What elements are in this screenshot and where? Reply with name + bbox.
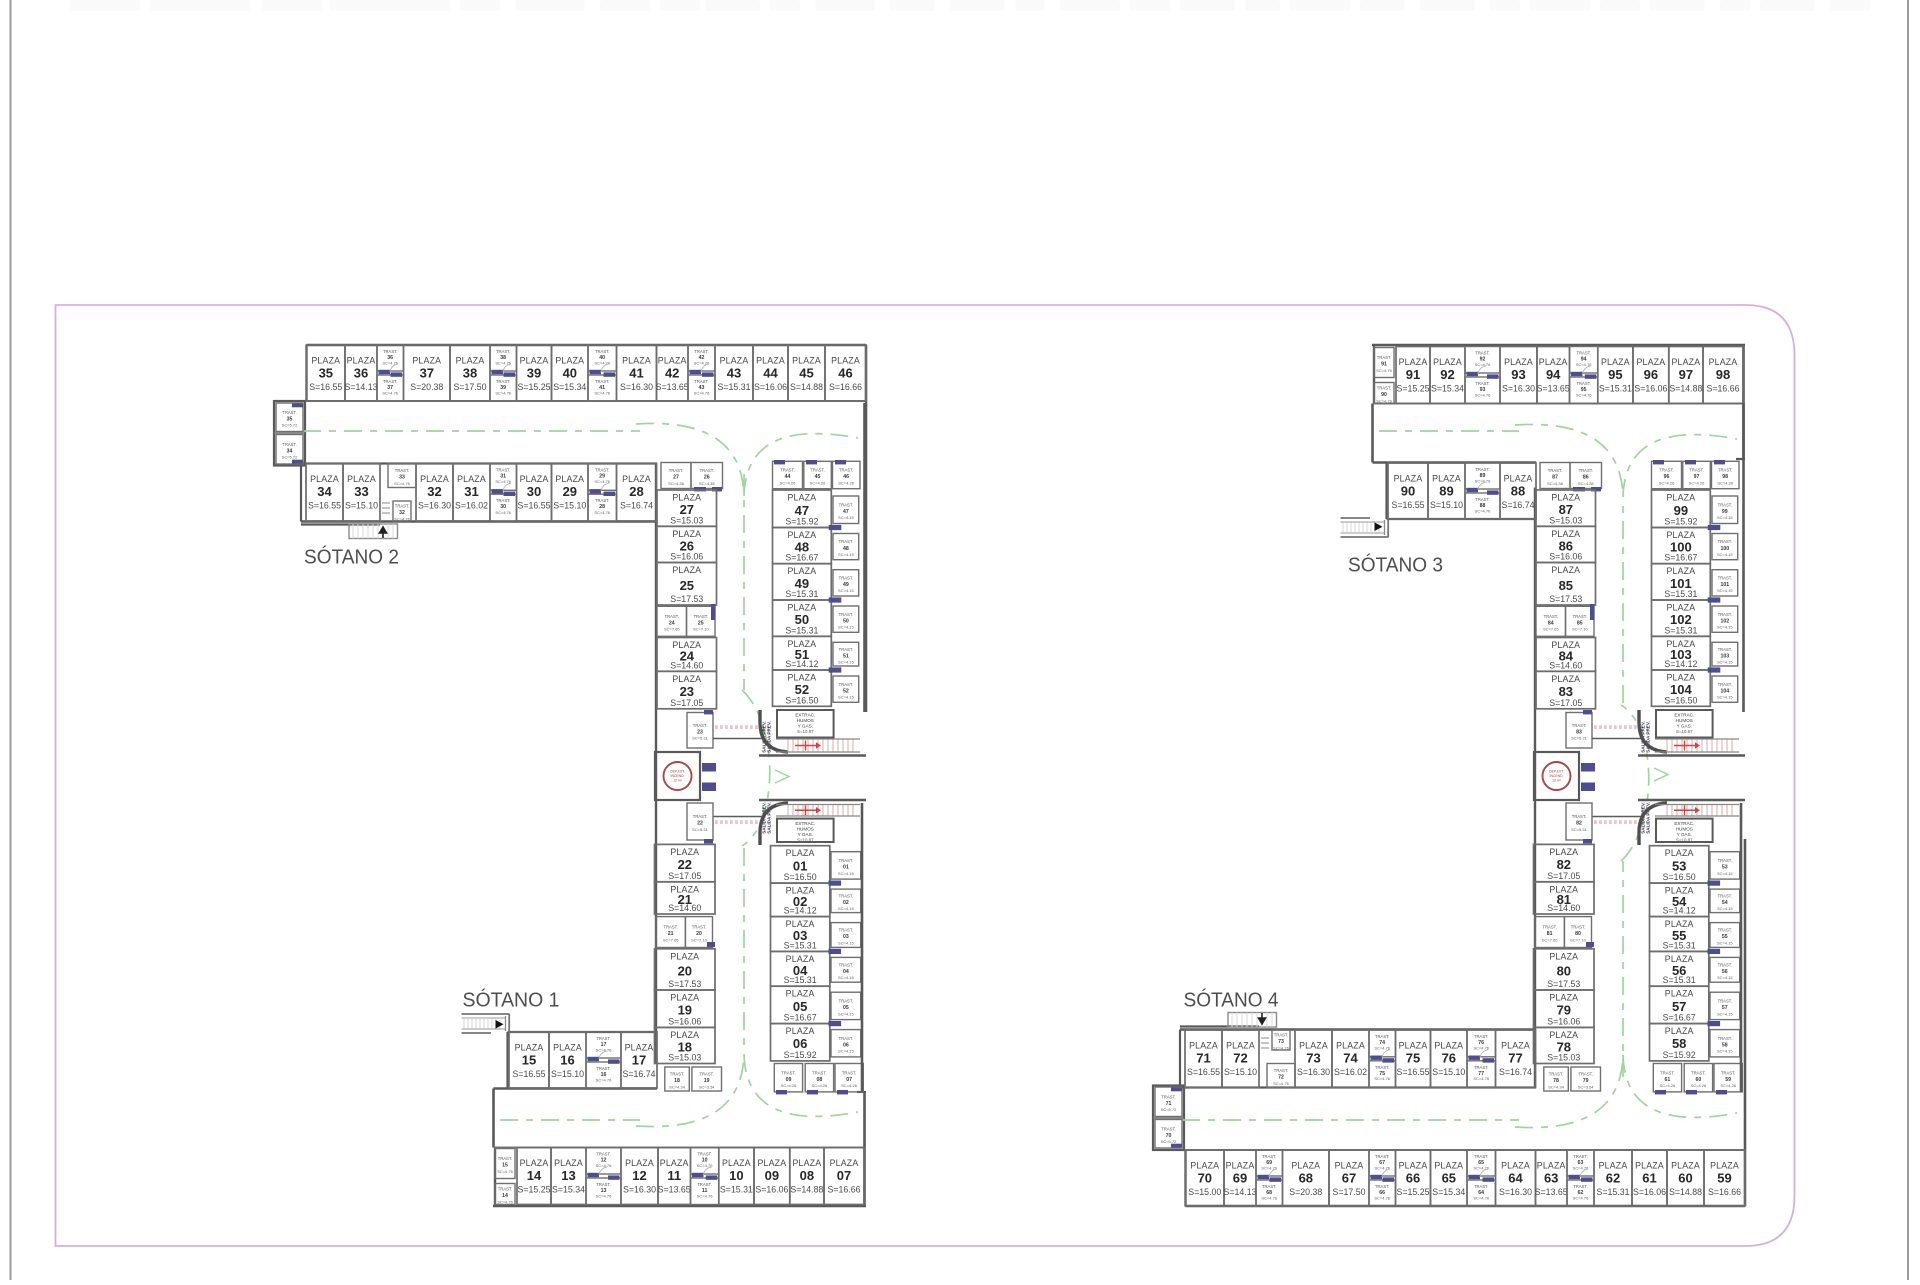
svg-text:TRAST.: TRAST. bbox=[1721, 1070, 1735, 1075]
svg-text:PLAZA: PLAZA bbox=[660, 1158, 689, 1168]
svg-text:SÓTANO 1: SÓTANO 1 bbox=[463, 989, 560, 1012]
svg-text:60: 60 bbox=[1678, 1171, 1692, 1186]
svg-text:S=16.66: S=16.66 bbox=[829, 382, 862, 392]
svg-text:PLAZA: PLAZA bbox=[786, 848, 815, 858]
svg-text:05: 05 bbox=[843, 1005, 849, 1011]
svg-text:PLAZA: PLAZA bbox=[1666, 493, 1695, 503]
svg-text:TRAST.: TRAST. bbox=[282, 442, 296, 447]
svg-text:S=16.55: S=16.55 bbox=[1391, 500, 1424, 510]
svg-text:SC=4.76: SC=4.76 bbox=[495, 510, 511, 515]
svg-text:PLAZA: PLAZA bbox=[670, 951, 699, 961]
svg-text:S=15.31: S=15.31 bbox=[1663, 975, 1696, 985]
svg-text:PLAZA: PLAZA bbox=[1399, 357, 1428, 367]
svg-text:PLAZA: PLAZA bbox=[1551, 674, 1580, 684]
svg-text:PLAZA: PLAZA bbox=[1709, 357, 1738, 367]
svg-text:S=14.12: S=14.12 bbox=[1663, 906, 1696, 916]
svg-text:22: 22 bbox=[697, 821, 703, 827]
svg-text:78: 78 bbox=[1553, 1078, 1559, 1084]
svg-text:PLAZA: PLAZA bbox=[1504, 357, 1533, 367]
svg-text:76: 76 bbox=[1442, 1051, 1456, 1066]
svg-text:88: 88 bbox=[1511, 484, 1525, 499]
svg-text:96: 96 bbox=[1664, 474, 1670, 480]
svg-text:83: 83 bbox=[1576, 730, 1582, 736]
svg-text:PLAZA: PLAZA bbox=[456, 356, 485, 366]
svg-text:PLAZA: PLAZA bbox=[1666, 566, 1695, 576]
svg-text:SC=4.76: SC=4.76 bbox=[497, 1199, 513, 1204]
svg-text:SC=4.76: SC=4.76 bbox=[1576, 393, 1592, 398]
svg-text:27: 27 bbox=[673, 475, 679, 481]
svg-text:98: 98 bbox=[1722, 474, 1728, 480]
svg-text:TRAST.: TRAST. bbox=[1718, 502, 1732, 507]
svg-text:S=16.66: S=16.66 bbox=[1708, 1187, 1741, 1197]
svg-text:PLAZA: PLAZA bbox=[672, 674, 701, 684]
svg-text:32: 32 bbox=[427, 484, 441, 499]
svg-text:PLAZA: PLAZA bbox=[457, 474, 486, 484]
svg-text:39: 39 bbox=[527, 366, 541, 381]
svg-text:20: 20 bbox=[678, 963, 692, 978]
svg-text:19: 19 bbox=[704, 1078, 710, 1084]
svg-text:SC=4.26: SC=4.26 bbox=[838, 480, 854, 485]
svg-text:PLAZA: PLAZA bbox=[1434, 1041, 1463, 1051]
svg-text:PLAZA: PLAZA bbox=[622, 474, 651, 484]
svg-text:25: 25 bbox=[680, 578, 694, 593]
svg-text:35: 35 bbox=[287, 416, 293, 422]
svg-text:SC=4.76: SC=4.76 bbox=[1573, 1196, 1589, 1201]
svg-text:PLAZA: PLAZA bbox=[792, 1158, 821, 1168]
svg-text:S=10.87: S=10.87 bbox=[797, 838, 814, 843]
svg-text:01: 01 bbox=[843, 865, 849, 871]
svg-text:TRAST.: TRAST. bbox=[1474, 1154, 1488, 1159]
svg-text:09: 09 bbox=[786, 1077, 792, 1083]
svg-text:S=15.92: S=15.92 bbox=[785, 517, 818, 527]
svg-text:TRAST.: TRAST. bbox=[596, 1152, 610, 1157]
svg-text:TRAST.: TRAST. bbox=[1578, 1072, 1592, 1077]
svg-text:25: 25 bbox=[698, 621, 704, 627]
svg-text:PLAZA: PLAZA bbox=[622, 356, 651, 366]
svg-text:44: 44 bbox=[763, 366, 778, 381]
svg-text:S=16.55: S=16.55 bbox=[517, 501, 550, 511]
svg-text:90: 90 bbox=[1381, 392, 1387, 398]
svg-text:Y GAS.: Y GAS. bbox=[798, 724, 813, 729]
svg-text:TRAST.: TRAST. bbox=[1474, 1065, 1488, 1070]
svg-text:S=17.53: S=17.53 bbox=[1549, 594, 1582, 604]
svg-text:PLAZA: PLAZA bbox=[1432, 474, 1461, 484]
svg-text:SC=4.26: SC=4.26 bbox=[812, 1083, 828, 1088]
svg-text:28: 28 bbox=[629, 484, 643, 499]
svg-text:PLAZA: PLAZA bbox=[1399, 1161, 1428, 1171]
svg-text:S=16.74: S=16.74 bbox=[1501, 500, 1534, 510]
svg-text:PLAZA: PLAZA bbox=[1299, 1041, 1328, 1051]
svg-text:PLAZA: PLAZA bbox=[310, 474, 339, 484]
svg-text:TRAST.: TRAST. bbox=[1475, 497, 1489, 502]
svg-text:TRAST.: TRAST. bbox=[839, 999, 853, 1004]
svg-text:33: 33 bbox=[354, 484, 368, 499]
svg-text:TRAST.: TRAST. bbox=[1718, 999, 1732, 1004]
svg-text:SÓTANO 3: SÓTANO 3 bbox=[1348, 554, 1443, 577]
svg-text:PLAZA: PLAZA bbox=[1665, 1026, 1694, 1036]
svg-text:SC=4.26: SC=4.26 bbox=[1720, 1083, 1736, 1088]
svg-text:PLAZA: PLAZA bbox=[830, 1158, 859, 1168]
svg-text:SC=4.76: SC=4.76 bbox=[1473, 1196, 1489, 1201]
svg-text:PLAZA: PLAZA bbox=[555, 356, 584, 366]
svg-text:PLAZA: PLAZA bbox=[658, 356, 687, 366]
svg-text:SC=4.15: SC=4.15 bbox=[838, 940, 854, 945]
svg-text:S=10.87: S=10.87 bbox=[1676, 729, 1693, 734]
svg-text:S=16.06: S=16.06 bbox=[754, 382, 787, 392]
svg-text:S=15.31: S=15.31 bbox=[717, 382, 750, 392]
svg-text:PLAZA: PLAZA bbox=[757, 1158, 786, 1168]
svg-text:S=15.25: S=15.25 bbox=[517, 382, 550, 392]
svg-text:S=16.30: S=16.30 bbox=[1502, 384, 1535, 394]
svg-text:TRAST.: TRAST. bbox=[1548, 468, 1562, 473]
svg-text:71: 71 bbox=[1166, 1101, 1172, 1107]
svg-text:S=16.50: S=16.50 bbox=[785, 695, 818, 705]
svg-text:TRAST.: TRAST. bbox=[669, 468, 683, 473]
svg-text:TRAST.: TRAST. bbox=[694, 379, 708, 384]
svg-text:TRAST.: TRAST. bbox=[665, 614, 679, 619]
svg-text:S=14.88: S=14.88 bbox=[1669, 384, 1702, 394]
svg-text:SC=4.15: SC=4.15 bbox=[1717, 695, 1733, 700]
svg-text:TRAST.: TRAST. bbox=[1718, 612, 1732, 617]
svg-text:TRAST.: TRAST. bbox=[697, 1152, 711, 1157]
svg-text:HUMOS: HUMOS bbox=[1676, 718, 1693, 723]
svg-text:TRAST.: TRAST. bbox=[781, 1070, 795, 1075]
svg-text:S=20.38: S=20.38 bbox=[1289, 1187, 1322, 1197]
svg-text:TRAST.: TRAST. bbox=[1274, 1033, 1288, 1038]
svg-text:SC=4.15: SC=4.15 bbox=[838, 660, 854, 665]
svg-text:30: 30 bbox=[527, 484, 541, 499]
svg-text:PLAZA: PLAZA bbox=[625, 1043, 654, 1053]
svg-text:03: 03 bbox=[843, 934, 849, 940]
svg-text:TRAST.: TRAST. bbox=[839, 682, 853, 687]
svg-text:TRAST.: TRAST. bbox=[1573, 1184, 1587, 1189]
svg-text:TRAST.: TRAST. bbox=[1718, 1036, 1732, 1041]
svg-text:S=13.65: S=13.65 bbox=[658, 1185, 691, 1195]
svg-text:SC=5.72: SC=5.72 bbox=[282, 455, 298, 460]
svg-text:SC=4.76: SC=4.76 bbox=[394, 516, 410, 521]
svg-text:SC=4.15: SC=4.15 bbox=[838, 906, 854, 911]
svg-text:S=16.55: S=16.55 bbox=[308, 501, 341, 511]
svg-text:100: 100 bbox=[1720, 546, 1729, 552]
svg-text:S=16.55: S=16.55 bbox=[512, 1069, 545, 1079]
svg-text:S=16.06: S=16.06 bbox=[1634, 384, 1667, 394]
svg-text:PLAZA: PLAZA bbox=[554, 1158, 583, 1168]
svg-text:SC=5.31: SC=5.31 bbox=[1571, 827, 1587, 832]
svg-text:S=16.06: S=16.06 bbox=[670, 552, 703, 562]
svg-text:SC=4.15: SC=4.15 bbox=[1717, 940, 1733, 945]
svg-text:S=14.12: S=14.12 bbox=[785, 659, 818, 669]
svg-text:SC=4.76: SC=4.76 bbox=[1376, 368, 1392, 373]
svg-text:S=15.03: S=15.03 bbox=[1549, 515, 1582, 525]
svg-text:TRAST.: TRAST. bbox=[1576, 381, 1590, 386]
svg-text:23: 23 bbox=[680, 684, 694, 699]
svg-text:PLAZA: PLAZA bbox=[1635, 1161, 1664, 1171]
svg-text:S=17.50: S=17.50 bbox=[453, 382, 486, 392]
svg-text:08: 08 bbox=[817, 1077, 823, 1083]
svg-text:91: 91 bbox=[1406, 367, 1420, 382]
svg-text:PLAZA: PLAZA bbox=[1539, 357, 1568, 367]
svg-text:S=15.03: S=15.03 bbox=[1547, 1053, 1580, 1063]
svg-text:SC=4.15: SC=4.15 bbox=[1717, 1011, 1733, 1016]
svg-text:S=15.31: S=15.31 bbox=[784, 975, 817, 985]
svg-text:16: 16 bbox=[560, 1053, 574, 1068]
svg-text:S=14.13: S=14.13 bbox=[344, 382, 377, 392]
svg-text:TRAST.: TRAST. bbox=[812, 1070, 826, 1075]
svg-text:SC=4.38: SC=4.38 bbox=[699, 481, 715, 486]
svg-text:04: 04 bbox=[843, 969, 849, 975]
svg-text:SC=4.15: SC=4.15 bbox=[838, 588, 854, 593]
svg-text:61: 61 bbox=[1665, 1077, 1671, 1083]
svg-text:HUMOS: HUMOS bbox=[797, 827, 814, 832]
svg-text:14: 14 bbox=[502, 1193, 508, 1199]
svg-text:S=15.92: S=15.92 bbox=[1664, 517, 1697, 527]
svg-text:95: 95 bbox=[1608, 367, 1622, 382]
svg-text:S=17.05: S=17.05 bbox=[1549, 698, 1582, 708]
svg-text:SC=4.15: SC=4.15 bbox=[1717, 625, 1733, 630]
svg-text:52: 52 bbox=[843, 688, 849, 694]
svg-text:07: 07 bbox=[837, 1168, 851, 1183]
svg-text:TRAST.: TRAST. bbox=[596, 1036, 610, 1041]
svg-text:TRAST.: TRAST. bbox=[839, 858, 853, 863]
svg-text:12 m³: 12 m³ bbox=[673, 779, 683, 783]
svg-text:S=15.03: S=15.03 bbox=[668, 1053, 701, 1063]
svg-text:PLAZA: PLAZA bbox=[672, 529, 701, 539]
svg-text:TRAST.: TRAST. bbox=[839, 576, 853, 581]
svg-text:TRAST.: TRAST. bbox=[596, 1066, 610, 1071]
svg-text:TRAST.: TRAST. bbox=[839, 928, 853, 933]
svg-text:PLAZA: PLAZA bbox=[1189, 1041, 1218, 1051]
svg-text:55: 55 bbox=[1722, 934, 1728, 940]
svg-text:SC=4.26: SC=4.26 bbox=[781, 1083, 797, 1088]
svg-text:63: 63 bbox=[1544, 1171, 1558, 1186]
svg-text:TRAST.: TRAST. bbox=[1691, 1070, 1705, 1075]
svg-text:TRAST.: TRAST. bbox=[595, 379, 609, 384]
svg-text:TRAST.: TRAST. bbox=[1161, 1094, 1175, 1099]
svg-text:64: 64 bbox=[1508, 1171, 1523, 1186]
svg-text:TRAST.: TRAST. bbox=[839, 468, 853, 473]
svg-text:S=15.34: S=15.34 bbox=[552, 1185, 585, 1195]
svg-text:TRAST.: TRAST. bbox=[383, 379, 397, 384]
svg-text:SC=4.76: SC=4.76 bbox=[1374, 1076, 1390, 1081]
svg-text:67: 67 bbox=[1342, 1171, 1356, 1186]
svg-text:TRAST.: TRAST. bbox=[595, 498, 609, 503]
svg-text:15: 15 bbox=[522, 1053, 536, 1068]
svg-text:PLAZA: PLAZA bbox=[1394, 474, 1423, 484]
svg-text:TRAST.: TRAST. bbox=[1579, 468, 1593, 473]
svg-text:PLAZA: PLAZA bbox=[1226, 1041, 1255, 1051]
svg-text:PLAZA: PLAZA bbox=[756, 356, 785, 366]
svg-text:85: 85 bbox=[1559, 578, 1573, 593]
svg-text:SC=4.15: SC=4.15 bbox=[838, 1011, 854, 1016]
svg-text:S=15.25: S=15.25 bbox=[1396, 1187, 1429, 1197]
svg-text:60: 60 bbox=[1696, 1077, 1702, 1083]
svg-text:S=16.66: S=16.66 bbox=[827, 1185, 860, 1195]
svg-text:SC=4.76: SC=4.76 bbox=[694, 361, 710, 366]
svg-text:S=13.65: S=13.65 bbox=[656, 382, 689, 392]
svg-text:PLAZA: PLAZA bbox=[1549, 993, 1578, 1003]
svg-text:65: 65 bbox=[1442, 1171, 1456, 1186]
svg-text:S=16.06: S=16.06 bbox=[755, 1185, 788, 1195]
svg-text:S=15.10: S=15.10 bbox=[1224, 1067, 1257, 1077]
svg-text:PLAZA: PLAZA bbox=[1551, 565, 1580, 575]
svg-text:83: 83 bbox=[1559, 684, 1573, 699]
svg-text:SC=7.65: SC=7.65 bbox=[1543, 627, 1559, 632]
svg-text:SC=4.76: SC=4.76 bbox=[1374, 1196, 1390, 1201]
svg-text:Y GAS.: Y GAS. bbox=[1677, 724, 1692, 729]
svg-text:PLAZA: PLAZA bbox=[792, 356, 821, 366]
svg-text:18: 18 bbox=[674, 1078, 680, 1084]
svg-text:12 m³: 12 m³ bbox=[1552, 779, 1562, 783]
svg-text:SC=4.15: SC=4.15 bbox=[1717, 552, 1733, 557]
svg-text:26: 26 bbox=[704, 475, 710, 481]
svg-text:S=15.31: S=15.31 bbox=[720, 1185, 753, 1195]
svg-text:TRAST.: TRAST. bbox=[496, 379, 510, 384]
svg-text:S=15.31: S=15.31 bbox=[784, 940, 817, 950]
svg-text:PLAZA: PLAZA bbox=[1636, 357, 1665, 367]
svg-text:SÓTANO 4: SÓTANO 4 bbox=[1184, 989, 1279, 1012]
svg-text:PLAZA: PLAZA bbox=[787, 603, 816, 613]
svg-text:SC=4.76: SC=4.76 bbox=[594, 391, 610, 396]
svg-text:SC=4.76: SC=4.76 bbox=[1473, 1166, 1489, 1171]
svg-text:73: 73 bbox=[1278, 1039, 1284, 1045]
svg-text:S=15.10: S=15.10 bbox=[551, 1069, 584, 1079]
svg-text:72: 72 bbox=[1233, 1051, 1247, 1066]
svg-text:TRAST.: TRAST. bbox=[1475, 381, 1489, 386]
svg-text:PLAZA: PLAZA bbox=[347, 474, 376, 484]
svg-text:TRAST.: TRAST. bbox=[1475, 351, 1489, 356]
svg-text:PLAZA: PLAZA bbox=[1601, 357, 1630, 367]
svg-text:TRAST.: TRAST. bbox=[1718, 894, 1732, 899]
svg-text:S=16.30: S=16.30 bbox=[418, 501, 451, 511]
svg-text:S=17.05: S=17.05 bbox=[670, 698, 703, 708]
svg-text:S=15.31: S=15.31 bbox=[1664, 625, 1697, 635]
svg-text:TRAST.: TRAST. bbox=[780, 468, 794, 473]
svg-text:S=17.05: S=17.05 bbox=[1547, 871, 1580, 881]
svg-text:SC=4.34: SC=4.34 bbox=[669, 1084, 685, 1089]
svg-text:PLAZA: PLAZA bbox=[347, 356, 376, 366]
svg-text:S=16.67: S=16.67 bbox=[784, 1013, 817, 1023]
svg-text:44: 44 bbox=[785, 474, 791, 480]
svg-text:PLAZA: PLAZA bbox=[1433, 357, 1462, 367]
svg-text:PLAZA: PLAZA bbox=[1551, 493, 1580, 503]
svg-text:SC=7.10: SC=7.10 bbox=[1570, 937, 1586, 942]
svg-text:PLAZA: PLAZA bbox=[787, 530, 816, 540]
svg-text:12: 12 bbox=[632, 1168, 646, 1183]
svg-text:SC=4.15: SC=4.15 bbox=[838, 625, 854, 630]
svg-text:S=16.02: S=16.02 bbox=[1334, 1067, 1367, 1077]
svg-text:101: 101 bbox=[1720, 582, 1729, 588]
svg-text:TRAST.: TRAST. bbox=[1375, 1034, 1389, 1039]
svg-text:23: 23 bbox=[697, 730, 703, 736]
svg-text:S=16.06: S=16.06 bbox=[1633, 1187, 1666, 1197]
svg-text:S=15.34: S=15.34 bbox=[553, 382, 586, 392]
svg-text:S=15.92: S=15.92 bbox=[1663, 1050, 1696, 1060]
svg-text:TRAST.: TRAST. bbox=[839, 647, 853, 652]
svg-text:57: 57 bbox=[1722, 1005, 1728, 1011]
svg-text:S=16.55: S=16.55 bbox=[309, 382, 342, 392]
svg-text:S=15.34: S=15.34 bbox=[1432, 1187, 1465, 1197]
svg-text:SC=4.15: SC=4.15 bbox=[1717, 975, 1733, 980]
svg-text:81: 81 bbox=[1547, 931, 1553, 937]
svg-text:PLAZA: PLAZA bbox=[520, 1158, 549, 1168]
svg-text:S=14.13: S=14.13 bbox=[1223, 1187, 1256, 1197]
svg-text:77: 77 bbox=[1508, 1051, 1522, 1066]
svg-text:TRAST.: TRAST. bbox=[839, 502, 853, 507]
svg-text:TRAST.: TRAST. bbox=[595, 349, 609, 354]
svg-text:93: 93 bbox=[1511, 367, 1525, 382]
svg-text:SC=4.76: SC=4.76 bbox=[694, 391, 710, 396]
svg-text:TRAST.: TRAST. bbox=[839, 894, 853, 899]
svg-text:SC=4.15: SC=4.15 bbox=[1717, 1049, 1733, 1054]
svg-text:PLAZA: PLAZA bbox=[786, 1026, 815, 1036]
svg-text:PLAZA: PLAZA bbox=[515, 1043, 544, 1053]
svg-text:07: 07 bbox=[846, 1077, 852, 1083]
svg-text:80: 80 bbox=[1575, 931, 1581, 937]
svg-text:PLAZA: PLAZA bbox=[520, 356, 549, 366]
svg-text:51: 51 bbox=[843, 653, 849, 659]
svg-text:PLAZA: PLAZA bbox=[520, 474, 549, 484]
svg-text:TRAST.: TRAST. bbox=[842, 1070, 856, 1075]
svg-text:S=16.66: S=16.66 bbox=[1706, 384, 1739, 394]
svg-text:TRAST.: TRAST. bbox=[1375, 1154, 1389, 1159]
svg-text:TRAST.: TRAST. bbox=[1718, 647, 1732, 652]
svg-text:96: 96 bbox=[1644, 367, 1658, 382]
svg-text:SC=4.38: SC=4.38 bbox=[1547, 481, 1563, 486]
svg-text:SC=5.72: SC=5.72 bbox=[282, 423, 298, 428]
svg-text:14: 14 bbox=[527, 1168, 542, 1183]
svg-text:SC=5.72: SC=5.72 bbox=[1161, 1107, 1177, 1112]
svg-text:PLAZA: PLAZA bbox=[1226, 1161, 1255, 1171]
svg-text:38: 38 bbox=[463, 366, 477, 381]
svg-text:SC=4.76: SC=4.76 bbox=[1273, 1045, 1289, 1050]
svg-text:S=15.31: S=15.31 bbox=[1596, 1187, 1629, 1197]
svg-text:SC=4.26: SC=4.26 bbox=[841, 1083, 857, 1088]
svg-text:TRAST.: TRAST. bbox=[1375, 1065, 1389, 1070]
svg-text:S=16.67: S=16.67 bbox=[1664, 553, 1697, 563]
svg-text:SC=4.15: SC=4.15 bbox=[838, 1049, 854, 1054]
svg-text:06: 06 bbox=[843, 1043, 849, 1049]
svg-text:S=15.25: S=15.25 bbox=[517, 1185, 550, 1195]
svg-text:09: 09 bbox=[765, 1168, 779, 1183]
svg-text:S=17.53: S=17.53 bbox=[670, 594, 703, 604]
svg-text:94: 94 bbox=[1546, 367, 1561, 382]
svg-text:102: 102 bbox=[1720, 618, 1729, 624]
svg-text:90: 90 bbox=[1401, 484, 1415, 499]
svg-text:17: 17 bbox=[632, 1053, 646, 1068]
svg-text:PLAZA: PLAZA bbox=[1665, 989, 1694, 999]
svg-text:PLAZA: PLAZA bbox=[670, 1030, 699, 1040]
svg-text:EXTRAC.: EXTRAC. bbox=[1674, 713, 1694, 718]
svg-text:SC=4.15: SC=4.15 bbox=[838, 552, 854, 557]
svg-text:S=15.00: S=15.00 bbox=[1188, 1187, 1221, 1197]
svg-text:SÓTANO 2: SÓTANO 2 bbox=[304, 546, 399, 569]
svg-text:SC=4.76: SC=4.76 bbox=[697, 1194, 713, 1199]
svg-text:72: 72 bbox=[1278, 1075, 1284, 1081]
svg-text:TRAST.: TRAST. bbox=[498, 1156, 512, 1161]
svg-text:TRAST.: TRAST. bbox=[596, 1182, 610, 1187]
svg-text:SC=4.76: SC=4.76 bbox=[1261, 1196, 1277, 1201]
svg-text:PLAZA: PLAZA bbox=[787, 566, 816, 576]
svg-text:TRAST.: TRAST. bbox=[1718, 928, 1732, 933]
svg-text:SC=4.15: SC=4.15 bbox=[1717, 906, 1733, 911]
svg-text:SC=4.76: SC=4.76 bbox=[1475, 362, 1491, 367]
svg-text:46: 46 bbox=[843, 474, 849, 480]
svg-text:SC=4.76: SC=4.76 bbox=[382, 391, 398, 396]
svg-text:69: 69 bbox=[1233, 1171, 1247, 1186]
svg-text:TRAST.: TRAST. bbox=[1573, 1154, 1587, 1159]
svg-text:40: 40 bbox=[563, 366, 577, 381]
svg-text:TRAST.: TRAST. bbox=[1718, 539, 1732, 544]
